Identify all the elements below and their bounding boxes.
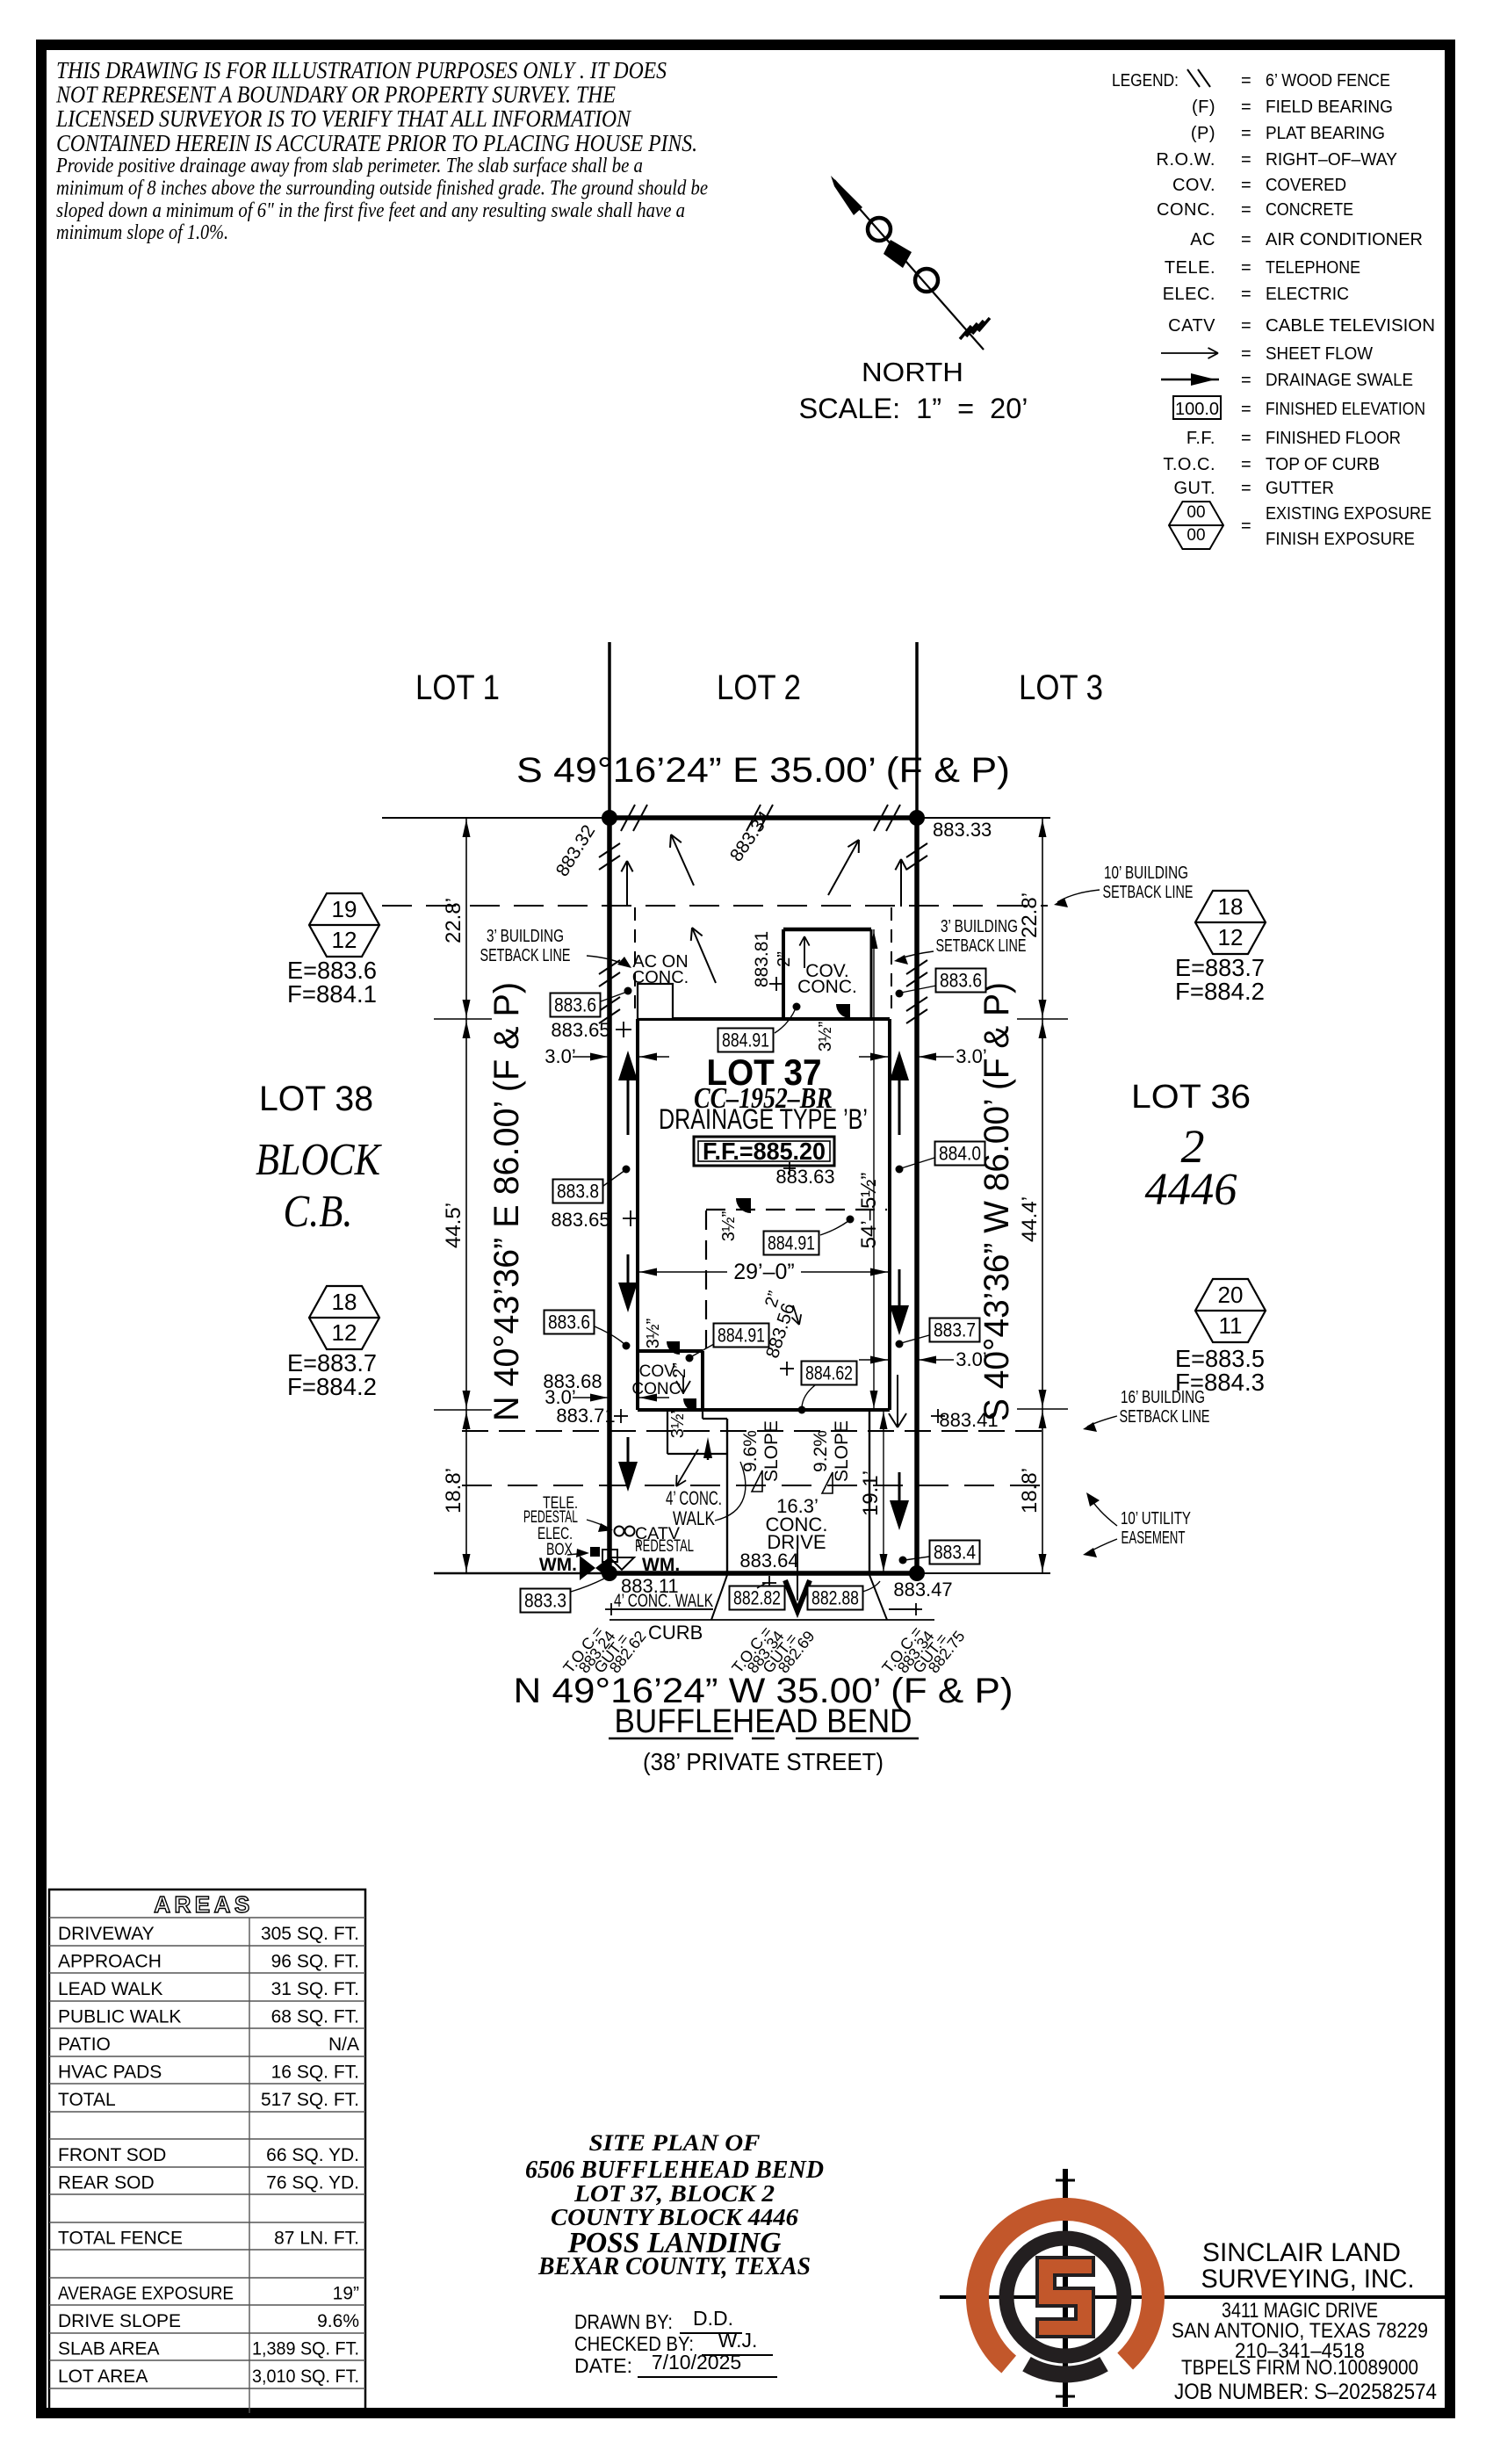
svg-text:COV.: COV. bbox=[1172, 176, 1215, 195]
svg-text:12: 12 bbox=[332, 1319, 357, 1346]
svg-text:SITE PLAN OF: SITE PLAN OF bbox=[589, 2130, 761, 2156]
svg-text:ELECTRIC: ELECTRIC bbox=[1266, 285, 1349, 304]
svg-text:SLOPE: SLOPE bbox=[761, 1420, 782, 1482]
svg-text:T.O.C.: T.O.C. bbox=[1163, 455, 1215, 474]
svg-text:HVAC PADS: HVAC PADS bbox=[58, 2063, 162, 2083]
svg-text:sloped down a minimum of 6" in: sloped down a minimum of 6" in the first… bbox=[56, 199, 685, 222]
svg-text:AREAS: AREAS bbox=[154, 1891, 254, 1918]
svg-text:44.5’: 44.5’ bbox=[442, 1203, 465, 1248]
svg-text:18.8’: 18.8’ bbox=[442, 1468, 465, 1514]
svg-text:AIR CONDITIONER: AIR CONDITIONER bbox=[1266, 230, 1423, 249]
svg-text:F.F.: F.F. bbox=[1186, 429, 1215, 448]
svg-text:SETBACK LINE: SETBACK LINE bbox=[1103, 883, 1194, 902]
svg-text:=: = bbox=[1241, 258, 1251, 278]
svg-text:DRIVEWAY: DRIVEWAY bbox=[58, 1924, 155, 1944]
svg-text:883.6: 883.6 bbox=[940, 970, 982, 992]
svg-text:SURVEYING, INC.: SURVEYING, INC. bbox=[1201, 2265, 1415, 2294]
svg-text:=: = bbox=[1241, 124, 1251, 143]
svg-text:SLAB AREA: SLAB AREA bbox=[58, 2339, 160, 2359]
svg-text:CONCRETE: CONCRETE bbox=[1266, 200, 1353, 220]
svg-text:3’ BUILDING: 3’ BUILDING bbox=[487, 927, 564, 946]
svg-text:2”: 2” bbox=[775, 951, 794, 967]
svg-text:3.0’: 3.0’ bbox=[956, 1348, 986, 1370]
svg-text:883.6: 883.6 bbox=[554, 994, 596, 1016]
svg-text:SETBACK LINE: SETBACK LINE bbox=[936, 936, 1027, 956]
svg-text:TBPELS FIRM NO.10089000: TBPELS FIRM NO.10089000 bbox=[1181, 2356, 1418, 2380]
svg-text:WM.: WM. bbox=[642, 1555, 680, 1575]
svg-text:RIGHT–OF–WAY: RIGHT–OF–WAY bbox=[1266, 150, 1397, 170]
svg-text:CATV: CATV bbox=[1168, 316, 1215, 336]
svg-text:minimum of 8 inches above the: minimum of 8 inches above the surroundin… bbox=[56, 176, 708, 199]
svg-text:CABLE TELEVISION: CABLE TELEVISION bbox=[1266, 316, 1435, 336]
svg-text:LOT 36: LOT 36 bbox=[1131, 1079, 1251, 1116]
svg-text:883.41: 883.41 bbox=[939, 1409, 998, 1431]
svg-text:=: = bbox=[1241, 71, 1251, 90]
svg-text:18: 18 bbox=[332, 1289, 357, 1315]
svg-text:SETBACK LINE: SETBACK LINE bbox=[480, 946, 571, 965]
svg-text:31 SQ. FT.: 31 SQ. FT. bbox=[271, 1979, 359, 1999]
svg-text:883.65: 883.65 bbox=[551, 1019, 609, 1041]
svg-text:883.7: 883.7 bbox=[934, 1319, 976, 1341]
svg-text:CONC.: CONC. bbox=[1157, 200, 1215, 220]
svg-text:PEDESTAL: PEDESTAL bbox=[635, 1537, 694, 1556]
svg-text:TOP OF CURB: TOP OF CURB bbox=[1266, 455, 1380, 474]
svg-text:CONC.: CONC. bbox=[632, 968, 689, 987]
svg-text:884.91: 884.91 bbox=[768, 1232, 815, 1254]
svg-text:=: = bbox=[1241, 176, 1251, 195]
svg-text:TELEPHONE: TELEPHONE bbox=[1266, 258, 1360, 278]
svg-text:517 SQ. FT.: 517 SQ. FT. bbox=[261, 2090, 359, 2110]
svg-text:N 40°43’36” E 86.00’ (F & P): N 40°43’36” E 86.00’ (F & P) bbox=[487, 982, 526, 1421]
svg-text:=: = bbox=[1241, 230, 1251, 249]
svg-text:19”: 19” bbox=[333, 2284, 359, 2304]
svg-text:(P): (P) bbox=[1191, 124, 1215, 143]
svg-text:3½”: 3½” bbox=[816, 1022, 835, 1051]
svg-text:10’ UTILITY: 10’ UTILITY bbox=[1121, 1509, 1191, 1528]
svg-text:REAR SOD: REAR SOD bbox=[58, 2173, 155, 2193]
svg-text:882.88: 882.88 bbox=[811, 1587, 859, 1609]
svg-text:FIELD BEARING: FIELD BEARING bbox=[1266, 98, 1393, 117]
svg-text:3½”: 3½” bbox=[644, 1319, 663, 1348]
svg-text:TOTAL: TOTAL bbox=[58, 2090, 116, 2110]
svg-text:FINISH EXPOSURE: FINISH EXPOSURE bbox=[1266, 530, 1415, 549]
svg-text:D.D.: D.D. bbox=[693, 2307, 733, 2330]
svg-text:W.J.: W.J. bbox=[718, 2329, 758, 2352]
svg-text:S 49°16’24” E 35.00’ (F & P): S 49°16’24” E 35.00’ (F & P) bbox=[516, 751, 1010, 790]
svg-text:(38’ PRIVATE STREET): (38’ PRIVATE STREET) bbox=[643, 1748, 884, 1775]
svg-text:3’ BUILDING: 3’ BUILDING bbox=[941, 917, 1018, 936]
svg-text:00: 00 bbox=[1186, 526, 1205, 545]
svg-text:LOT 2: LOT 2 bbox=[717, 668, 801, 707]
svg-text:LOT 1: LOT 1 bbox=[415, 668, 500, 707]
svg-text:=: = bbox=[1241, 200, 1251, 220]
svg-text:N/A: N/A bbox=[328, 2034, 359, 2055]
svg-text:FINISHED FLOOR: FINISHED FLOOR bbox=[1266, 429, 1401, 448]
svg-text:DRAINAGE TYPE ’B’: DRAINAGE TYPE ’B’ bbox=[659, 1103, 868, 1135]
svg-text:COVERED: COVERED bbox=[1266, 176, 1346, 195]
svg-text:76 SQ. YD.: 76 SQ. YD. bbox=[266, 2173, 359, 2193]
svg-text:F.F.=885.20: F.F.=885.20 bbox=[703, 1138, 826, 1165]
svg-text:BOX: BOX bbox=[546, 1541, 573, 1559]
svg-text:19.1’: 19.1’ bbox=[859, 1470, 883, 1516]
svg-text:DRAWN BY:: DRAWN BY: bbox=[574, 2310, 673, 2333]
svg-text:68 SQ. FT.: 68 SQ. FT. bbox=[271, 2007, 359, 2027]
svg-text:EXISTING EXPOSURE: EXISTING EXPOSURE bbox=[1266, 504, 1432, 524]
svg-text:00: 00 bbox=[1186, 503, 1205, 522]
svg-text:883.81: 883.81 bbox=[752, 931, 772, 987]
svg-text:DRIVE SLOPE: DRIVE SLOPE bbox=[58, 2311, 181, 2331]
svg-text:F=884.2: F=884.2 bbox=[1175, 978, 1265, 1005]
svg-text:FRONT SOD: FRONT SOD bbox=[58, 2145, 166, 2165]
svg-text:ELEC.: ELEC. bbox=[1163, 285, 1215, 304]
svg-text:9.6%: 9.6% bbox=[740, 1430, 761, 1472]
svg-text:NORTH: NORTH bbox=[862, 357, 963, 387]
svg-text:PEDESTAL: PEDESTAL bbox=[523, 1508, 578, 1527]
svg-text:883.64: 883.64 bbox=[739, 1550, 798, 1572]
svg-text:=: = bbox=[1241, 429, 1251, 448]
svg-text:=: = bbox=[1241, 150, 1251, 170]
svg-text:BUFFLEHEAD BEND: BUFFLEHEAD BEND bbox=[615, 1703, 912, 1740]
svg-text:AC: AC bbox=[1190, 230, 1215, 249]
svg-text:19: 19 bbox=[332, 896, 357, 922]
svg-text:=: = bbox=[1241, 400, 1251, 419]
svg-text:4446: 4446 bbox=[1145, 1165, 1237, 1215]
svg-text:4’ CONC.: 4’ CONC. bbox=[666, 1487, 722, 1509]
svg-text:4’ CONC. WALK: 4’ CONC. WALK bbox=[614, 1591, 713, 1611]
svg-text:6’ WOOD FENCE: 6’ WOOD FENCE bbox=[1266, 71, 1390, 90]
svg-text:=: = bbox=[1241, 371, 1251, 390]
svg-text:DRAINAGE SWALE: DRAINAGE SWALE bbox=[1266, 371, 1413, 390]
svg-text:22.8’: 22.8’ bbox=[442, 898, 465, 943]
svg-text:TELE.: TELE. bbox=[1165, 258, 1215, 278]
svg-text:18.8’: 18.8’ bbox=[1018, 1468, 1042, 1514]
svg-text:LOT AREA: LOT AREA bbox=[58, 2366, 148, 2387]
svg-text:BEXAR COUNTY, TEXAS: BEXAR COUNTY, TEXAS bbox=[537, 2253, 811, 2280]
svg-text:=: = bbox=[1241, 316, 1251, 336]
svg-text:EASEMENT: EASEMENT bbox=[1122, 1528, 1186, 1548]
svg-text:minimum slope of 1.0%.: minimum slope of 1.0%. bbox=[56, 220, 228, 244]
svg-text:CURB: CURB bbox=[648, 1622, 703, 1644]
svg-text:SETBACK LINE: SETBACK LINE bbox=[1120, 1407, 1210, 1427]
svg-text:883.4: 883.4 bbox=[934, 1542, 976, 1564]
svg-text:12: 12 bbox=[332, 927, 357, 953]
svg-text:9.2%: 9.2% bbox=[811, 1430, 831, 1472]
svg-text:3,010 SQ. FT.: 3,010 SQ. FT. bbox=[252, 2366, 359, 2387]
svg-text:2”: 2” bbox=[670, 1362, 689, 1378]
svg-text:883.47: 883.47 bbox=[893, 1579, 952, 1601]
svg-text:882.82: 882.82 bbox=[733, 1587, 781, 1609]
svg-text:883.33: 883.33 bbox=[933, 819, 992, 841]
svg-text:PATIO: PATIO bbox=[58, 2034, 111, 2055]
svg-text:LOT 38: LOT 38 bbox=[259, 1080, 373, 1118]
svg-text:18: 18 bbox=[1218, 893, 1244, 920]
svg-text:=: = bbox=[1241, 344, 1251, 364]
svg-text:3.0’: 3.0’ bbox=[956, 1045, 986, 1067]
svg-text:BLOCK: BLOCK bbox=[256, 1135, 382, 1185]
svg-text:883.65: 883.65 bbox=[551, 1209, 609, 1231]
svg-text:22.8’: 22.8’ bbox=[1018, 892, 1042, 938]
svg-text:FINISHED ELEVATION: FINISHED ELEVATION bbox=[1266, 400, 1425, 419]
svg-text:884.0: 884.0 bbox=[939, 1143, 981, 1165]
svg-text:883.68: 883.68 bbox=[543, 1370, 602, 1392]
svg-text:LEGEND:: LEGEND: bbox=[1112, 71, 1179, 90]
svg-text:PUBLIC WALK: PUBLIC WALK bbox=[58, 2007, 181, 2027]
svg-text:SLOPE: SLOPE bbox=[832, 1420, 852, 1482]
svg-text:3½”: 3½” bbox=[668, 1408, 688, 1438]
svg-text:LEAD WALK: LEAD WALK bbox=[58, 1979, 162, 1999]
svg-text:LOT 3: LOT 3 bbox=[1019, 668, 1103, 707]
svg-text:PLAT BEARING: PLAT BEARING bbox=[1266, 124, 1385, 143]
svg-text:=: = bbox=[1241, 517, 1251, 536]
svg-text:883.3: 883.3 bbox=[524, 1590, 566, 1612]
svg-text:JOB NUMBER: S–202582574: JOB NUMBER: S–202582574 bbox=[1174, 2380, 1437, 2404]
svg-text:C.B.: C.B. bbox=[284, 1187, 353, 1237]
svg-text:F=884.3: F=884.3 bbox=[1175, 1369, 1265, 1396]
svg-text:20: 20 bbox=[1218, 1282, 1244, 1308]
svg-text:F=884.2: F=884.2 bbox=[287, 1373, 377, 1400]
svg-text:=: = bbox=[1241, 479, 1251, 498]
svg-text:11: 11 bbox=[1219, 1312, 1243, 1339]
svg-text:GUTTER: GUTTER bbox=[1266, 479, 1334, 498]
svg-text:66 SQ. YD.: 66 SQ. YD. bbox=[266, 2145, 359, 2165]
svg-text:10’ BUILDING: 10’ BUILDING bbox=[1104, 863, 1188, 883]
svg-text:3.0’: 3.0’ bbox=[545, 1045, 575, 1067]
svg-text:1,389 SQ. FT.: 1,389 SQ. FT. bbox=[252, 2339, 359, 2359]
svg-text:THIS DRAWING IS FOR ILLUSTRATI: THIS DRAWING IS FOR ILLUSTRATION PURPOSE… bbox=[56, 57, 667, 83]
svg-text:SCALE: 1” = 20’: SCALE: 1” = 20’ bbox=[799, 393, 1028, 424]
svg-text:Provide positive drainage away: Provide positive drainage away from slab… bbox=[55, 154, 643, 177]
svg-text:305 SQ. FT.: 305 SQ. FT. bbox=[261, 1924, 359, 1944]
svg-text:883.8: 883.8 bbox=[557, 1181, 599, 1203]
svg-text:APPROACH: APPROACH bbox=[58, 1952, 162, 1972]
svg-text:F=884.1: F=884.1 bbox=[287, 980, 377, 1008]
svg-text:29’–0”: 29’–0” bbox=[733, 1260, 795, 1284]
svg-text:87 LN. FT.: 87 LN. FT. bbox=[274, 2229, 359, 2249]
svg-text:CONTAINED HEREIN IS ACCURATE P: CONTAINED HEREIN IS ACCURATE PRIOR TO PL… bbox=[56, 130, 697, 156]
svg-text:AVERAGE EXPOSURE: AVERAGE EXPOSURE bbox=[58, 2284, 234, 2304]
svg-text:LOT 37, BLOCK 2: LOT 37, BLOCK 2 bbox=[573, 2180, 775, 2207]
svg-text:44.4’: 44.4’ bbox=[1018, 1196, 1042, 1242]
svg-text:100.0: 100.0 bbox=[1175, 400, 1219, 419]
svg-text:9.6%: 9.6% bbox=[317, 2311, 359, 2331]
svg-text:CONC.: CONC. bbox=[797, 977, 857, 997]
svg-text:LICENSED SURVEYOR IS TO VERIFY: LICENSED SURVEYOR IS TO VERIFY THAT ALL … bbox=[55, 105, 632, 132]
svg-text:SHEET FLOW: SHEET FLOW bbox=[1266, 344, 1373, 364]
svg-text:884.91: 884.91 bbox=[722, 1030, 769, 1051]
svg-text:884.91: 884.91 bbox=[718, 1325, 765, 1347]
svg-text:=: = bbox=[1241, 285, 1251, 304]
svg-text:=: = bbox=[1241, 98, 1251, 117]
svg-text:SINCLAIR LAND: SINCLAIR LAND bbox=[1202, 2238, 1401, 2267]
svg-text:12: 12 bbox=[1218, 924, 1244, 950]
svg-text:884.62: 884.62 bbox=[805, 1362, 853, 1384]
svg-text:NOT REPRESENT A BOUNDARY OR PR: NOT REPRESENT A BOUNDARY OR PROPERTY SUR… bbox=[55, 82, 616, 108]
svg-text:96 SQ. FT.: 96 SQ. FT. bbox=[271, 1952, 359, 1972]
svg-text:54’–5½”: 54’–5½” bbox=[857, 1173, 881, 1249]
svg-text:(F): (F) bbox=[1192, 98, 1215, 117]
svg-text:883.71: 883.71 bbox=[556, 1405, 615, 1427]
svg-text:883.6: 883.6 bbox=[548, 1311, 590, 1333]
svg-text:R.O.W.: R.O.W. bbox=[1157, 150, 1215, 170]
svg-text:16 SQ. FT.: 16 SQ. FT. bbox=[271, 2063, 359, 2083]
svg-text:TOTAL FENCE: TOTAL FENCE bbox=[58, 2229, 183, 2249]
svg-text:GUT.: GUT. bbox=[1173, 479, 1215, 498]
svg-text:7/10/2025: 7/10/2025 bbox=[652, 2351, 741, 2374]
svg-text:DATE:: DATE: bbox=[574, 2354, 632, 2377]
svg-text:3½”: 3½” bbox=[719, 1211, 739, 1241]
svg-text:=: = bbox=[1241, 455, 1251, 474]
